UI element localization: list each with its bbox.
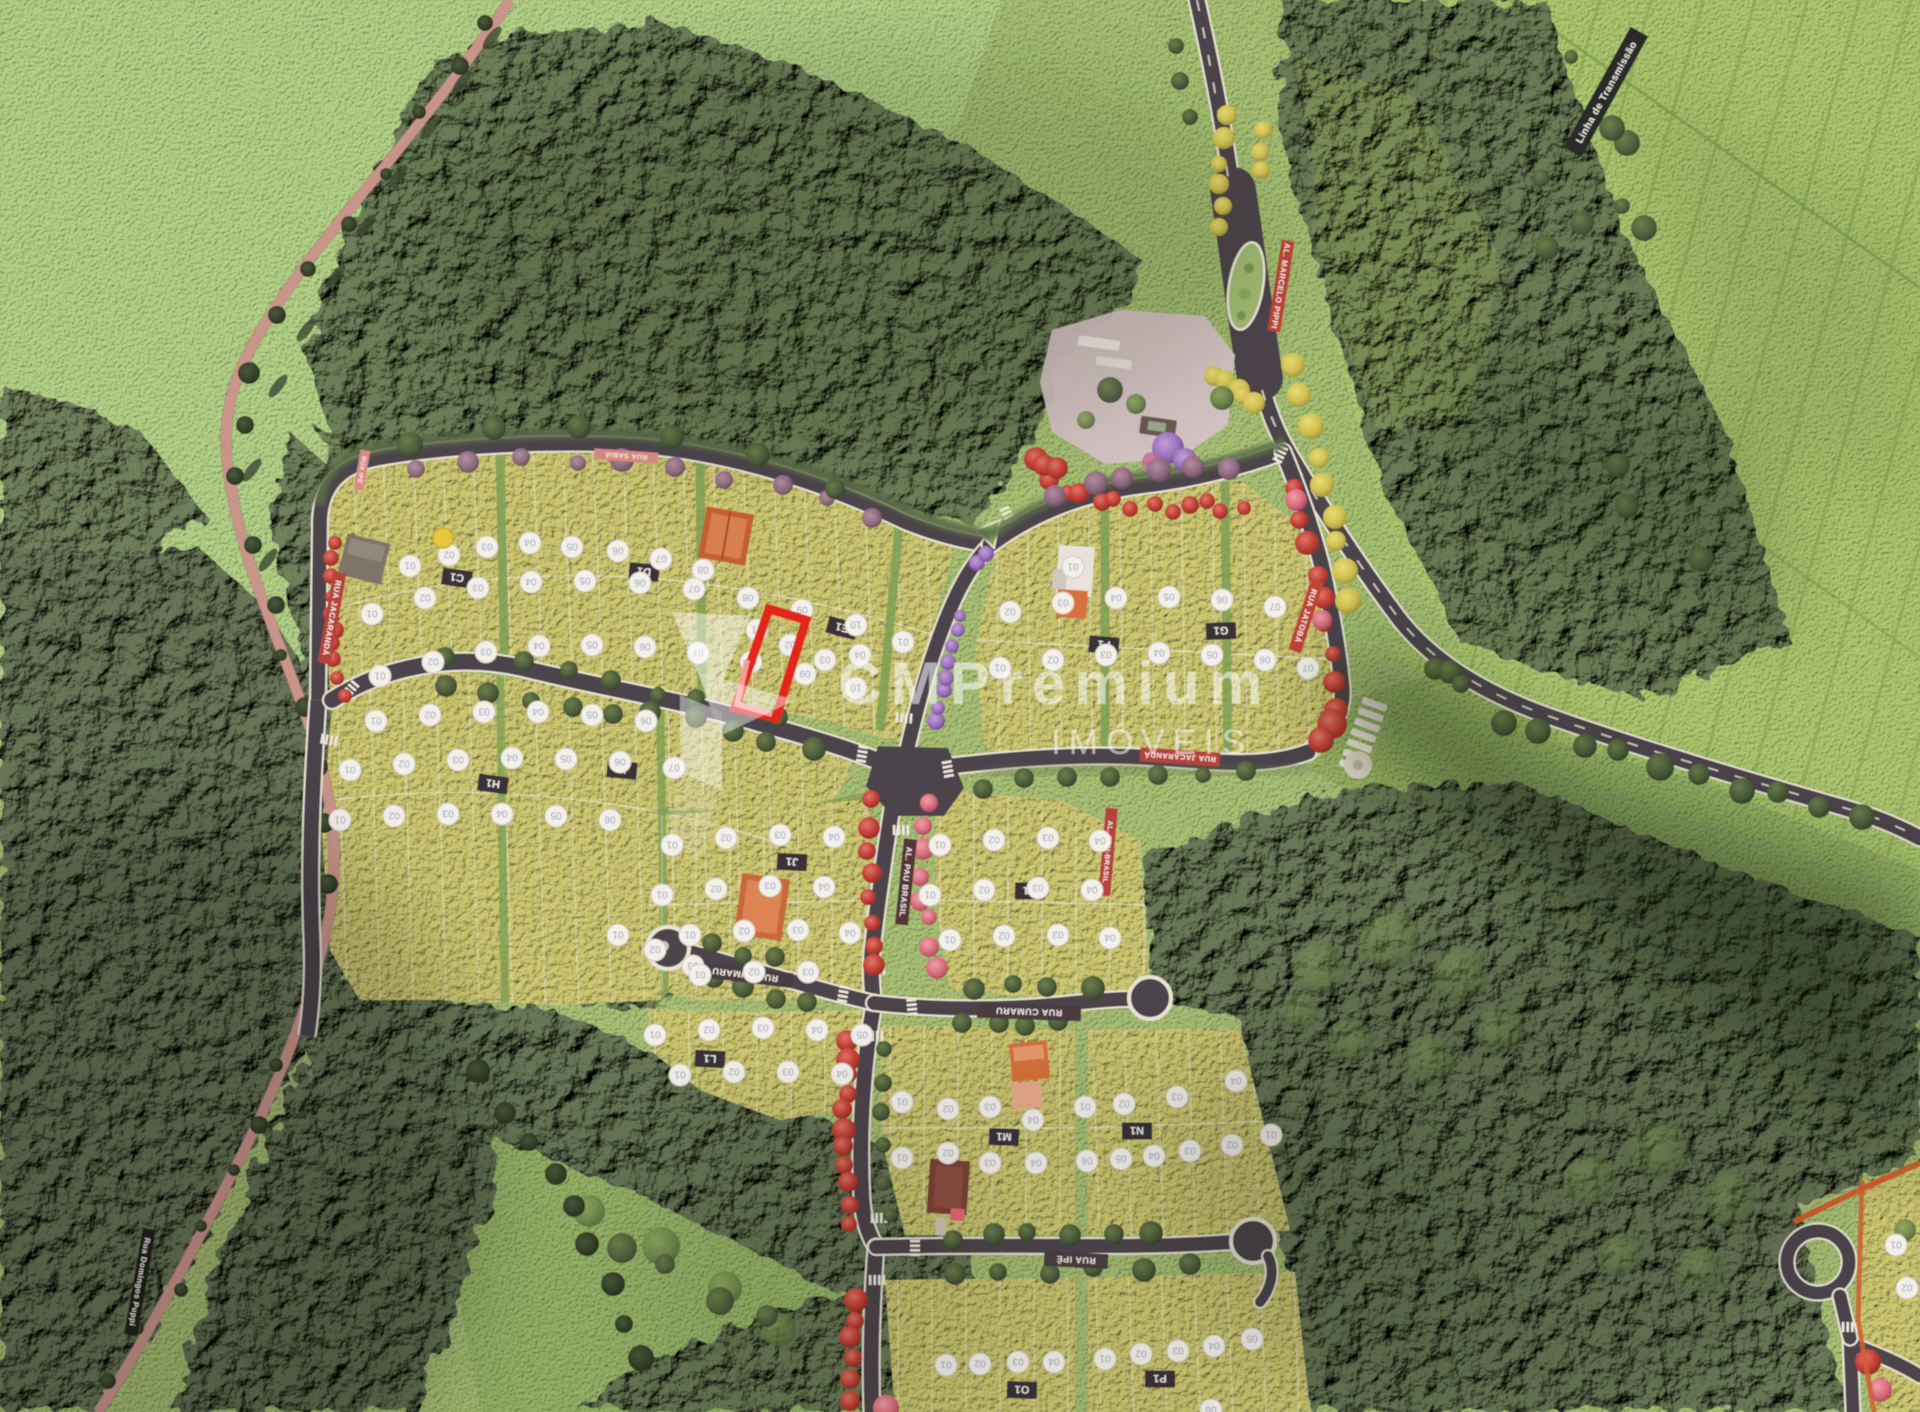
- svg-text:06: 06: [612, 545, 624, 556]
- svg-text:02: 02: [419, 592, 431, 603]
- svg-text:01: 01: [404, 560, 416, 571]
- svg-text:05: 05: [1163, 591, 1175, 602]
- svg-text:03: 03: [802, 966, 814, 977]
- svg-text:09: 09: [799, 668, 811, 679]
- svg-text:05: 05: [579, 575, 591, 586]
- svg-text:03: 03: [757, 1022, 769, 1033]
- svg-text:03: 03: [480, 646, 492, 657]
- svg-text:02: 02: [424, 709, 436, 720]
- svg-text:02: 02: [710, 883, 722, 894]
- svg-text:03: 03: [481, 541, 493, 552]
- svg-text:01: 01: [656, 889, 668, 900]
- svg-text:06: 06: [634, 577, 646, 588]
- svg-text:H1: H1: [485, 776, 501, 790]
- svg-text:04: 04: [1104, 932, 1116, 943]
- svg-text:04: 04: [496, 808, 508, 819]
- svg-text:03: 03: [764, 880, 776, 891]
- svg-text:05: 05: [550, 810, 562, 821]
- svg-text:01: 01: [694, 969, 706, 980]
- svg-text:04: 04: [811, 1024, 823, 1035]
- svg-text:02: 02: [443, 549, 455, 560]
- svg-text:IMÓVEIS: IMÓVEIS: [1051, 723, 1253, 762]
- svg-text:01: 01: [374, 670, 386, 681]
- svg-text:07: 07: [688, 583, 700, 594]
- svg-text:06: 06: [614, 756, 626, 767]
- svg-text:04: 04: [1110, 592, 1122, 603]
- svg-text:05: 05: [586, 709, 598, 720]
- svg-text:02: 02: [388, 810, 400, 821]
- svg-text:01: 01: [684, 929, 696, 940]
- svg-text:03: 03: [478, 706, 490, 717]
- svg-text:02: 02: [1901, 1282, 1913, 1293]
- svg-text:02: 02: [649, 944, 661, 955]
- svg-text:02: 02: [748, 966, 760, 977]
- svg-text:01: 01: [649, 1029, 661, 1040]
- svg-text:01: 01: [334, 814, 346, 825]
- svg-text:02: 02: [978, 884, 990, 895]
- svg-text:02: 02: [1004, 606, 1016, 617]
- svg-text:01: 01: [366, 608, 378, 619]
- svg-text:07: 07: [1269, 601, 1281, 612]
- svg-text:02: 02: [728, 1066, 740, 1077]
- svg-text:04: 04: [828, 831, 840, 842]
- svg-text:01: 01: [1890, 1239, 1902, 1250]
- svg-text:02: 02: [398, 758, 410, 769]
- svg-text:04: 04: [533, 640, 545, 651]
- svg-text:03: 03: [472, 582, 484, 593]
- svg-text:02: 02: [738, 925, 750, 936]
- svg-text:02: 02: [720, 832, 732, 843]
- svg-text:04: 04: [532, 706, 544, 717]
- svg-text:04: 04: [844, 927, 856, 938]
- svg-text:04: 04: [524, 537, 536, 548]
- svg-text:01: 01: [934, 839, 946, 850]
- svg-text:04: 04: [525, 576, 537, 587]
- svg-text:01: 01: [944, 934, 956, 945]
- svg-text:01: 01: [1067, 561, 1079, 572]
- svg-text:01: 01: [370, 715, 382, 726]
- svg-text:05: 05: [560, 753, 572, 764]
- svg-text:03: 03: [452, 754, 464, 765]
- svg-text:04: 04: [1094, 835, 1106, 846]
- svg-text:06: 06: [604, 814, 616, 825]
- svg-text:08: 08: [697, 564, 709, 575]
- svg-text:08: 08: [742, 592, 754, 603]
- svg-text:01: 01: [674, 1069, 686, 1080]
- svg-text:05: 05: [586, 639, 598, 650]
- svg-text:06: 06: [1216, 594, 1228, 605]
- svg-text:03: 03: [1032, 882, 1044, 893]
- svg-text:06: 06: [640, 715, 652, 726]
- svg-text:03: 03: [1052, 929, 1064, 940]
- svg-text:03: 03: [1057, 597, 1069, 608]
- svg-text:04: 04: [818, 881, 830, 892]
- svg-text:CMPremium: CMPremium: [838, 650, 1272, 717]
- svg-text:02: 02: [998, 930, 1010, 941]
- svg-text:C1: C1: [449, 570, 465, 584]
- svg-text:02: 02: [427, 656, 439, 667]
- svg-text:01: 01: [924, 889, 936, 900]
- svg-text:01: 01: [897, 636, 909, 647]
- svg-text:03: 03: [782, 1066, 794, 1077]
- svg-text:03: 03: [1042, 832, 1054, 843]
- svg-text:01: 01: [612, 929, 624, 940]
- svg-text:03: 03: [774, 829, 786, 840]
- svg-text:01: 01: [344, 764, 356, 775]
- svg-text:07: 07: [655, 553, 667, 564]
- svg-text:04: 04: [1086, 884, 1098, 895]
- svg-text:04: 04: [836, 1068, 848, 1079]
- svg-text:07: 07: [1302, 662, 1314, 673]
- svg-text:04: 04: [506, 752, 518, 763]
- svg-text:07: 07: [668, 762, 680, 773]
- svg-text:G1: G1: [1213, 624, 1228, 637]
- svg-text:05: 05: [856, 1029, 868, 1040]
- svg-text:J1: J1: [786, 855, 799, 868]
- svg-text:06: 06: [639, 641, 651, 652]
- svg-text:05: 05: [566, 541, 578, 552]
- svg-text:10: 10: [850, 619, 862, 630]
- svg-text:02: 02: [988, 834, 1000, 845]
- svg-text:L1: L1: [703, 1052, 716, 1065]
- svg-text:03: 03: [442, 808, 454, 819]
- svg-text:02: 02: [703, 1024, 715, 1035]
- svg-text:03: 03: [792, 924, 804, 935]
- svg-text:03: 03: [819, 654, 831, 665]
